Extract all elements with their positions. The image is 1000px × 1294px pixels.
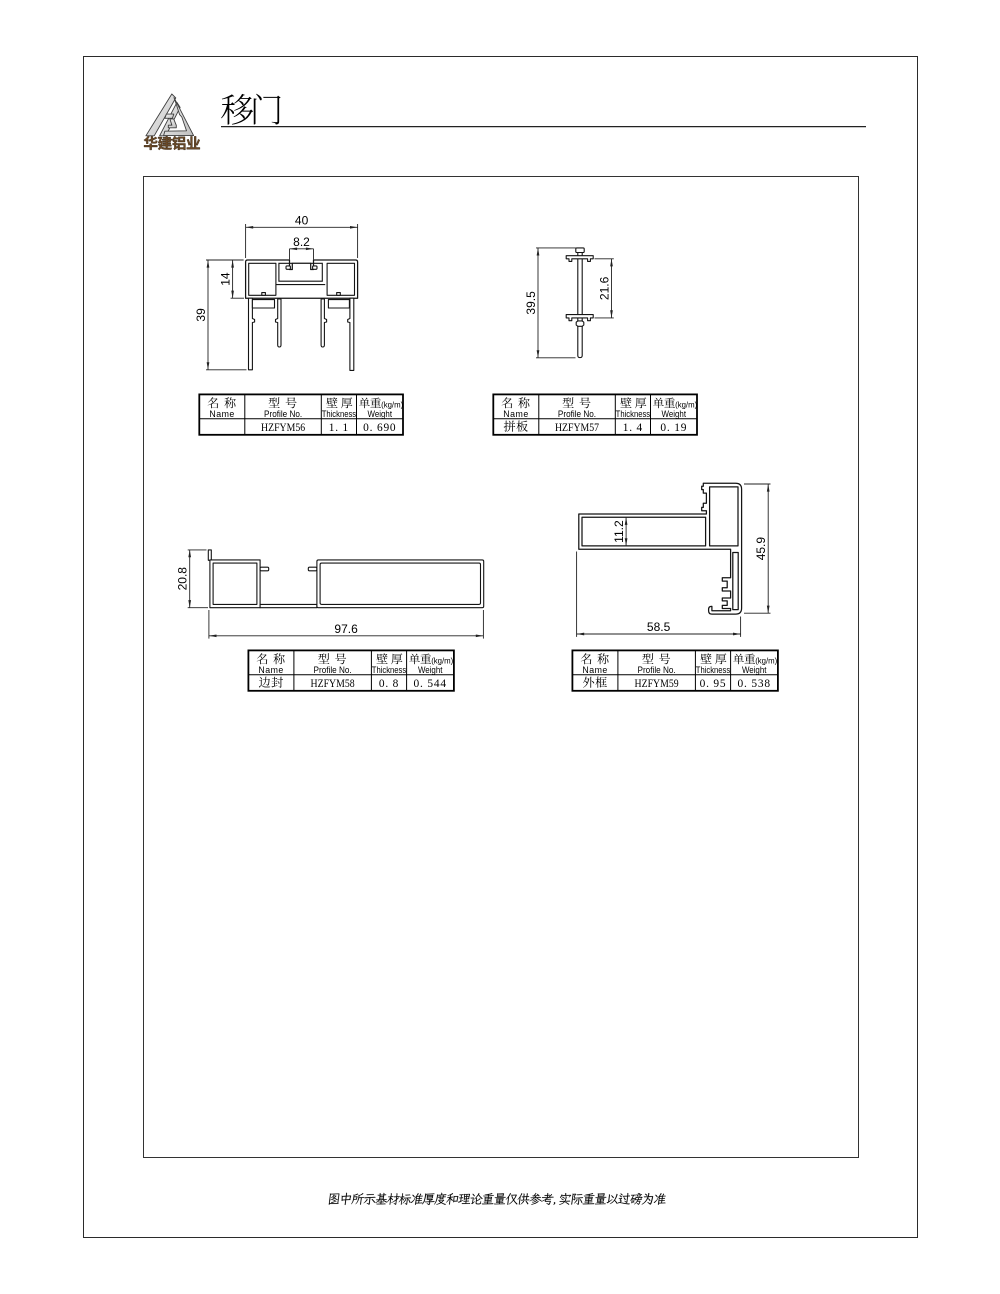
svg-text:39: 39 [194, 308, 208, 322]
svg-text:Name: Name [503, 409, 528, 419]
svg-text:Name: Name [582, 665, 607, 675]
svg-text:0. 690: 0. 690 [363, 422, 396, 434]
svg-text:0. 8: 0. 8 [379, 678, 399, 690]
svg-text:40: 40 [295, 213, 309, 227]
svg-text:Thickness: Thickness [616, 409, 650, 419]
svg-text:0. 95: 0. 95 [700, 678, 727, 690]
svg-text:Profile No.: Profile No. [638, 665, 676, 675]
svg-text:Weight: Weight [662, 408, 687, 419]
svg-text:0. 19: 0. 19 [660, 422, 687, 434]
svg-text:Name: Name [209, 409, 234, 419]
svg-text:21.6: 21.6 [597, 276, 611, 300]
svg-text:58.5: 58.5 [647, 620, 671, 634]
svg-text:8.2: 8.2 [293, 235, 310, 249]
svg-text:Thickness: Thickness [696, 665, 730, 675]
svg-text:0. 538: 0. 538 [738, 678, 771, 690]
svg-text:45.9: 45.9 [754, 537, 768, 561]
svg-text:Name: Name [258, 665, 283, 675]
svg-text:0. 544: 0. 544 [414, 678, 447, 690]
svg-text:Profile No.: Profile No. [264, 409, 302, 419]
svg-text:HZFYM56: HZFYM56 [261, 422, 305, 434]
svg-text:Thickness: Thickness [372, 665, 406, 675]
svg-text:Thickness: Thickness [322, 409, 356, 419]
svg-text:HZFYM57: HZFYM57 [555, 422, 599, 434]
svg-text:11.2: 11.2 [612, 520, 626, 543]
svg-text:1. 1: 1. 1 [329, 422, 349, 434]
svg-text:HZFYM59: HZFYM59 [635, 678, 679, 690]
svg-text:39.5: 39.5 [524, 291, 538, 315]
svg-text:1. 4: 1. 4 [623, 422, 643, 434]
svg-text:20.8: 20.8 [176, 567, 190, 591]
svg-text:Weight: Weight [418, 664, 443, 675]
svg-text:HZFYM58: HZFYM58 [311, 678, 355, 690]
svg-text:Profile No.: Profile No. [558, 409, 596, 419]
svg-text:Weight: Weight [368, 408, 393, 419]
svg-text:Profile No.: Profile No. [314, 665, 352, 675]
svg-text:14: 14 [219, 272, 233, 286]
svg-text:97.6: 97.6 [334, 622, 358, 636]
svg-text:Weight: Weight [742, 664, 767, 675]
